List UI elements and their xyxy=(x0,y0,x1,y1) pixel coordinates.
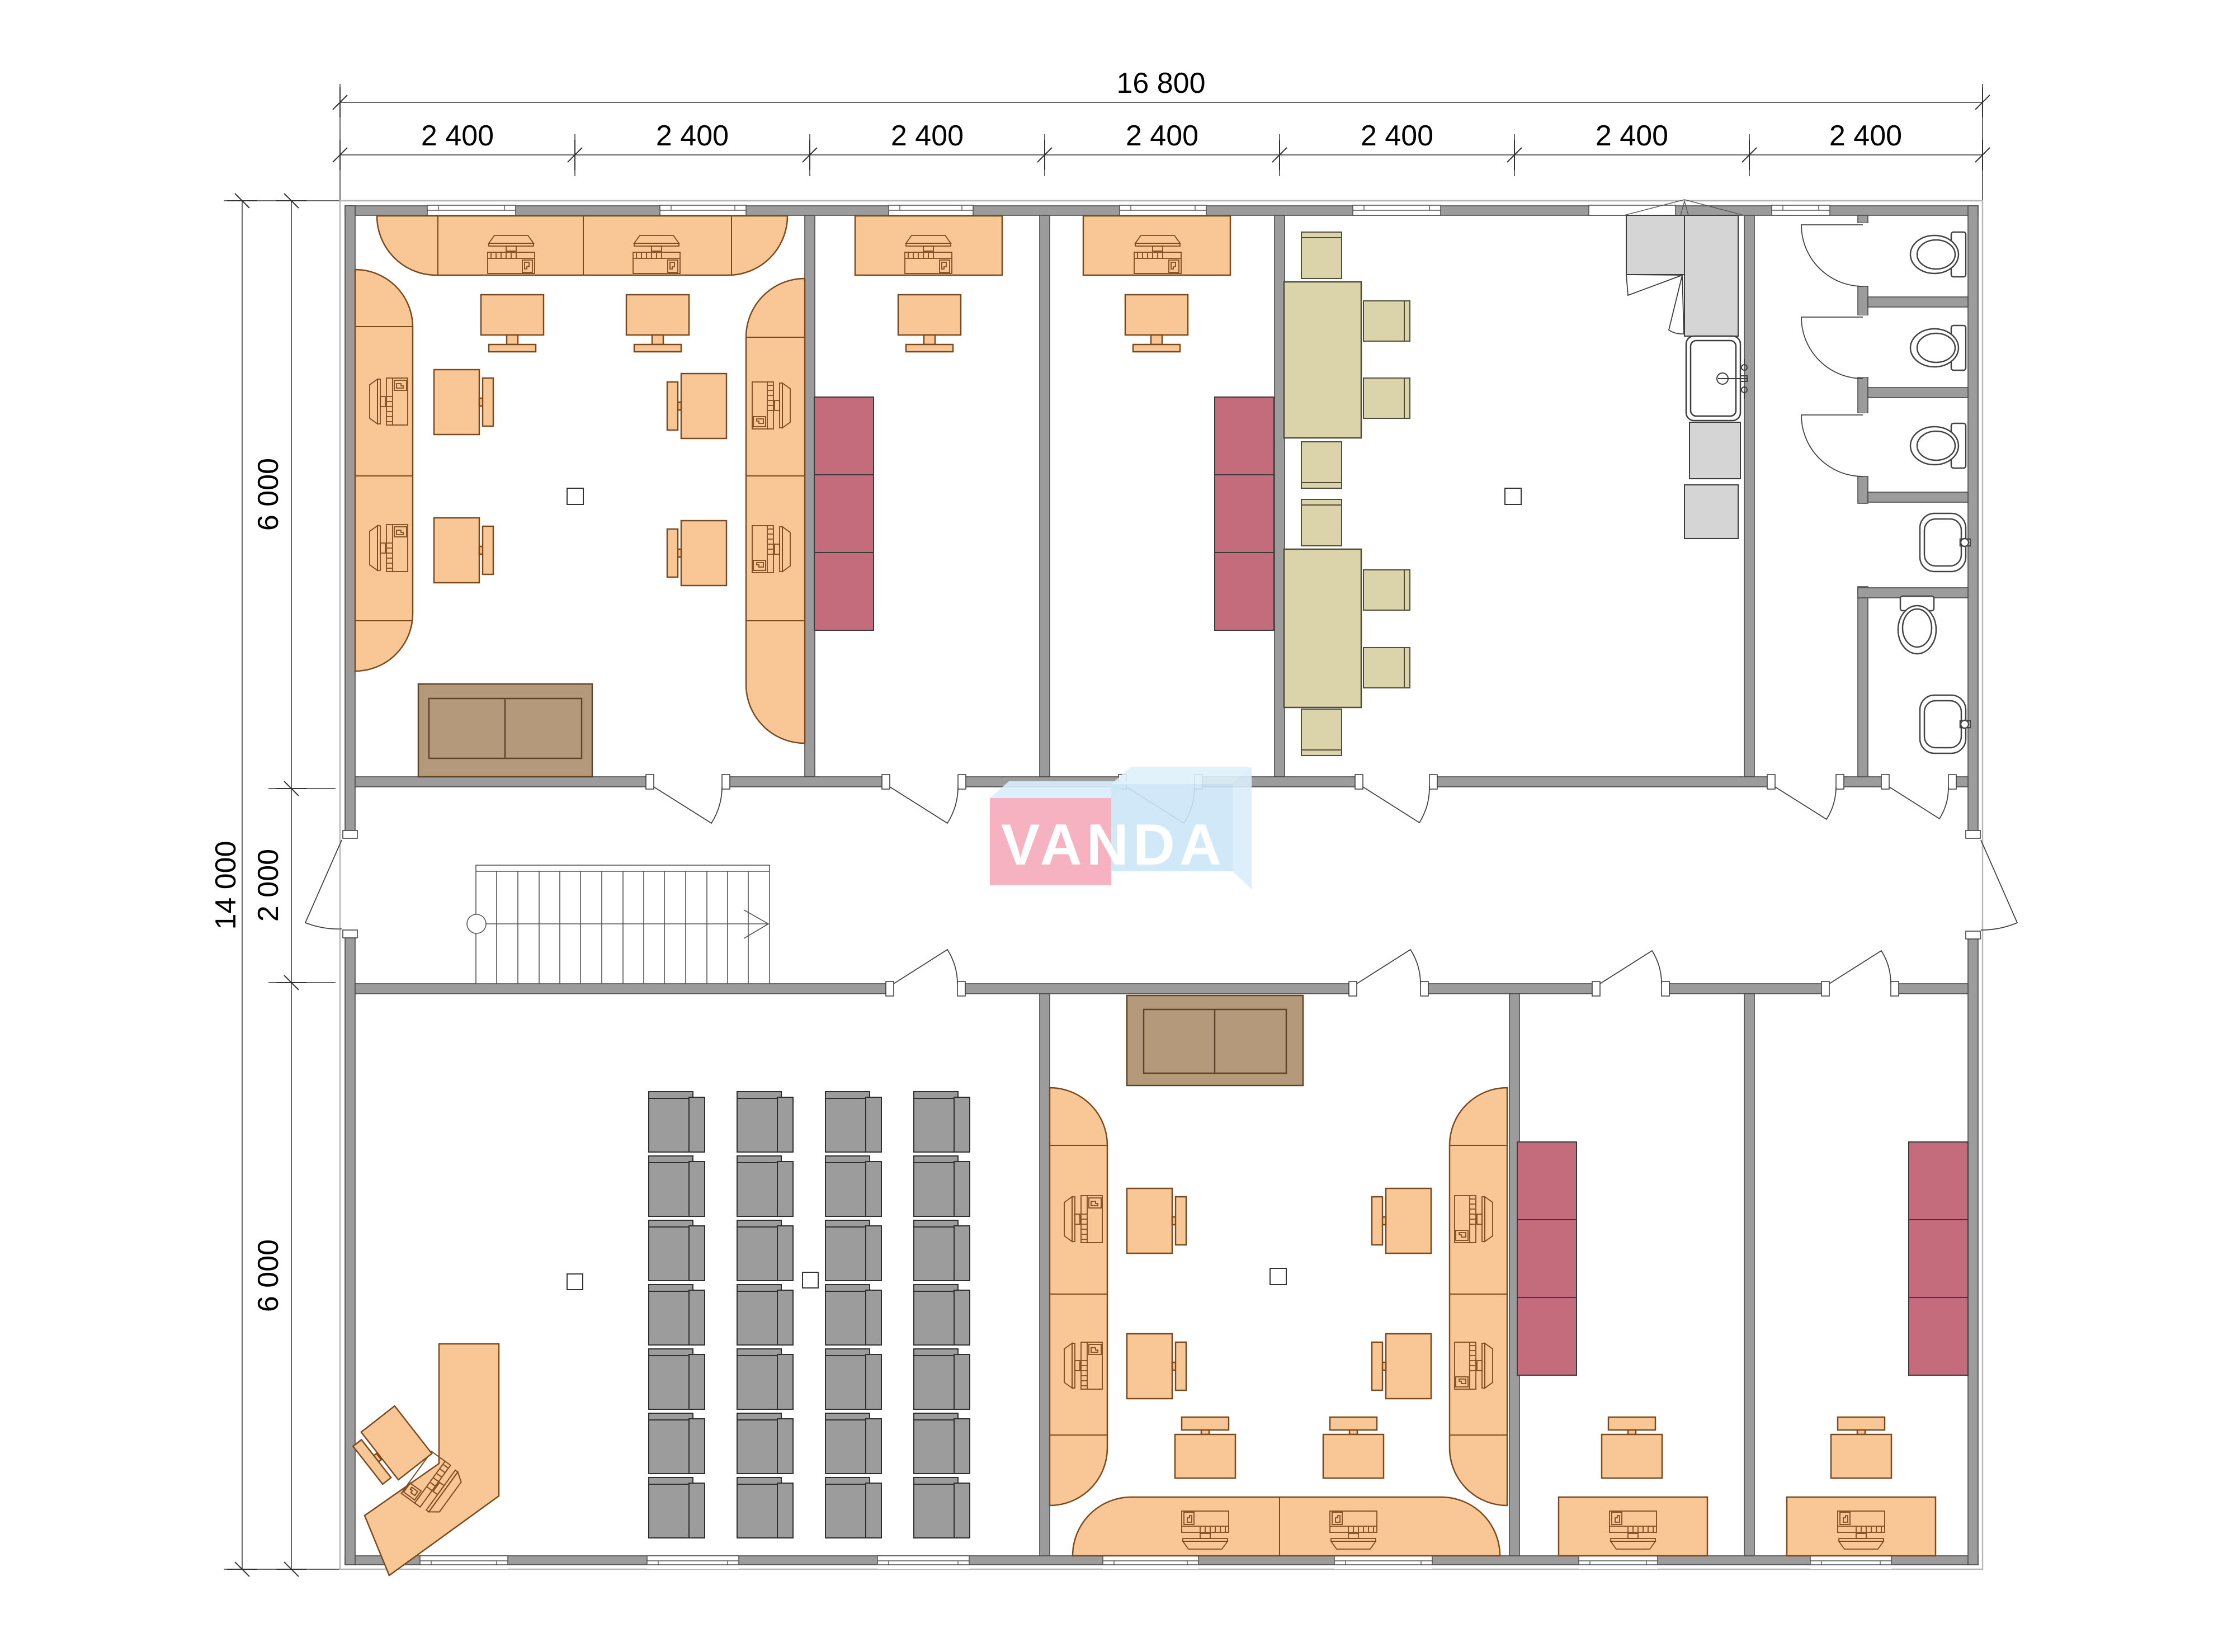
svg-text:2 400: 2 400 xyxy=(891,120,964,152)
svg-text:2 400: 2 400 xyxy=(1361,120,1433,152)
svg-text:14 000: 14 000 xyxy=(210,841,242,929)
svg-text:16 800: 16 800 xyxy=(1116,67,1205,100)
svg-text:2 400: 2 400 xyxy=(421,120,494,152)
svg-text:2 400: 2 400 xyxy=(656,120,729,152)
svg-text:6 000: 6 000 xyxy=(252,1239,285,1312)
svg-text:2 400: 2 400 xyxy=(1829,120,1902,152)
svg-text:6 000: 6 000 xyxy=(252,458,285,531)
svg-text:2 400: 2 400 xyxy=(1596,120,1668,152)
svg-text:2 000: 2 000 xyxy=(252,849,285,922)
svg-text:2 400: 2 400 xyxy=(1126,120,1198,152)
svg-text:VANDA: VANDA xyxy=(1001,813,1226,877)
